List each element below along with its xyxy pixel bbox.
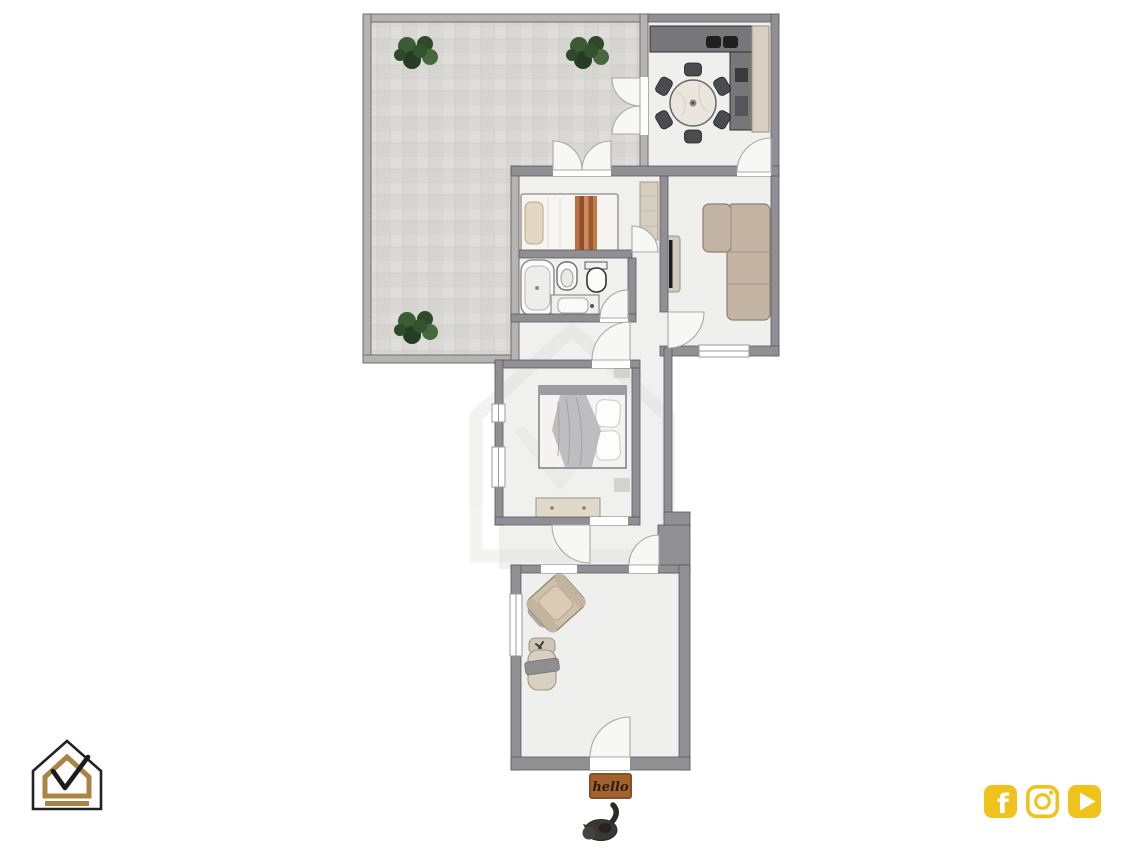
dresser (536, 498, 600, 518)
wall-niche (614, 478, 630, 492)
svg-text:f: f (997, 789, 1009, 820)
doormat: hello (590, 774, 631, 798)
lounge-chair (524, 638, 559, 690)
floorplan-page: hello f (0, 0, 1133, 850)
tv-icon (669, 240, 673, 288)
chair (685, 63, 702, 76)
sofa-main (727, 204, 770, 320)
sink-basin (706, 36, 721, 48)
gold-bar (45, 801, 89, 806)
headboard (539, 386, 626, 395)
drain (535, 286, 539, 290)
toilet (587, 268, 606, 292)
facebook-icon: f (984, 785, 1017, 820)
tall-cabinet (752, 26, 769, 132)
appliance-icon (735, 96, 748, 116)
house-check-logo (33, 741, 101, 809)
chair (685, 130, 702, 143)
sofa-chaise (703, 204, 731, 252)
social-icons: f (984, 785, 1101, 820)
pillow (525, 202, 543, 244)
cat-icon (583, 805, 618, 841)
youtube-icon (1068, 785, 1101, 818)
instagram-icon (1028, 787, 1058, 817)
kitchen-counter-side (730, 52, 752, 130)
bathroom (521, 260, 607, 316)
doormat-text: hello (592, 780, 629, 795)
faucet (590, 304, 594, 308)
pillow (595, 399, 621, 428)
floorplan-image: hello f (0, 0, 1133, 850)
oven-icon (735, 68, 748, 82)
sink-basin (723, 36, 738, 48)
